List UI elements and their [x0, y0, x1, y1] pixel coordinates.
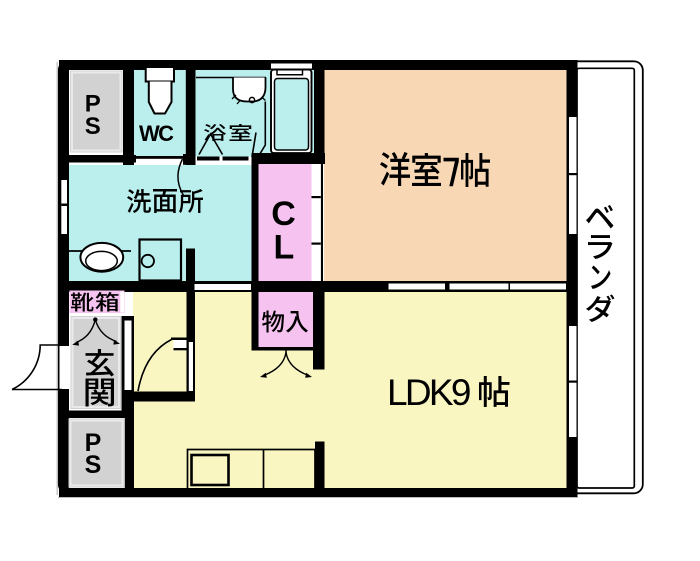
- svg-text:L: L: [274, 229, 295, 267]
- svg-text:S: S: [85, 113, 101, 140]
- svg-text:LDK9: LDK9: [387, 372, 472, 413]
- svg-text:S: S: [85, 451, 102, 479]
- svg-text:WC: WC: [139, 121, 174, 146]
- svg-text:C: C: [271, 195, 296, 233]
